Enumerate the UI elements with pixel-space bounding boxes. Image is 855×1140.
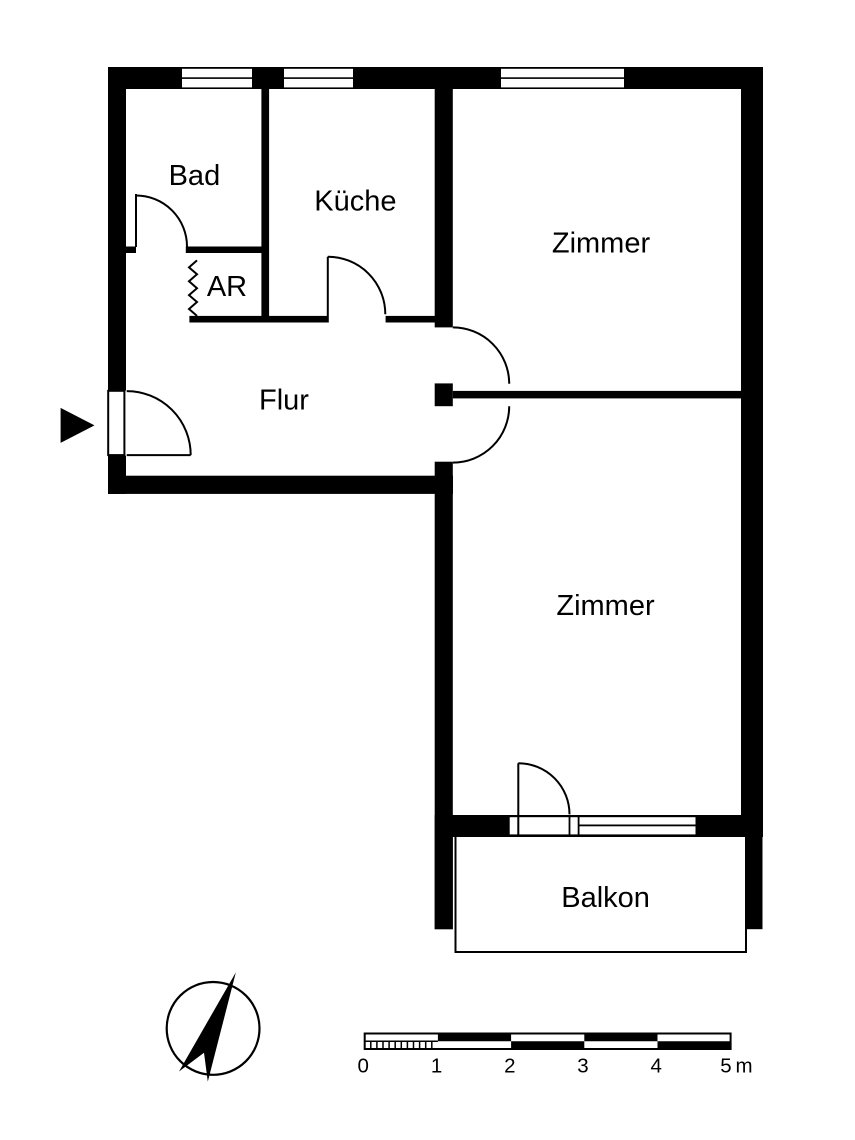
svg-text:m: m (736, 1055, 753, 1078)
svg-text:3: 3 (577, 1055, 588, 1078)
svg-text:2: 2 (504, 1055, 515, 1078)
svg-text:Balkon: Balkon (561, 882, 650, 914)
svg-text:Zimmer: Zimmer (556, 590, 655, 622)
svg-text:5: 5 (720, 1055, 731, 1078)
svg-text:0: 0 (357, 1055, 368, 1078)
svg-text:Bad: Bad (169, 160, 221, 192)
svg-text:1: 1 (431, 1055, 442, 1078)
svg-text:AR: AR (207, 271, 247, 303)
svg-text:Flur: Flur (259, 385, 309, 417)
svg-text:Küche: Küche (314, 186, 396, 218)
svg-text:Zimmer: Zimmer (552, 227, 651, 259)
svg-text:4: 4 (650, 1055, 661, 1078)
